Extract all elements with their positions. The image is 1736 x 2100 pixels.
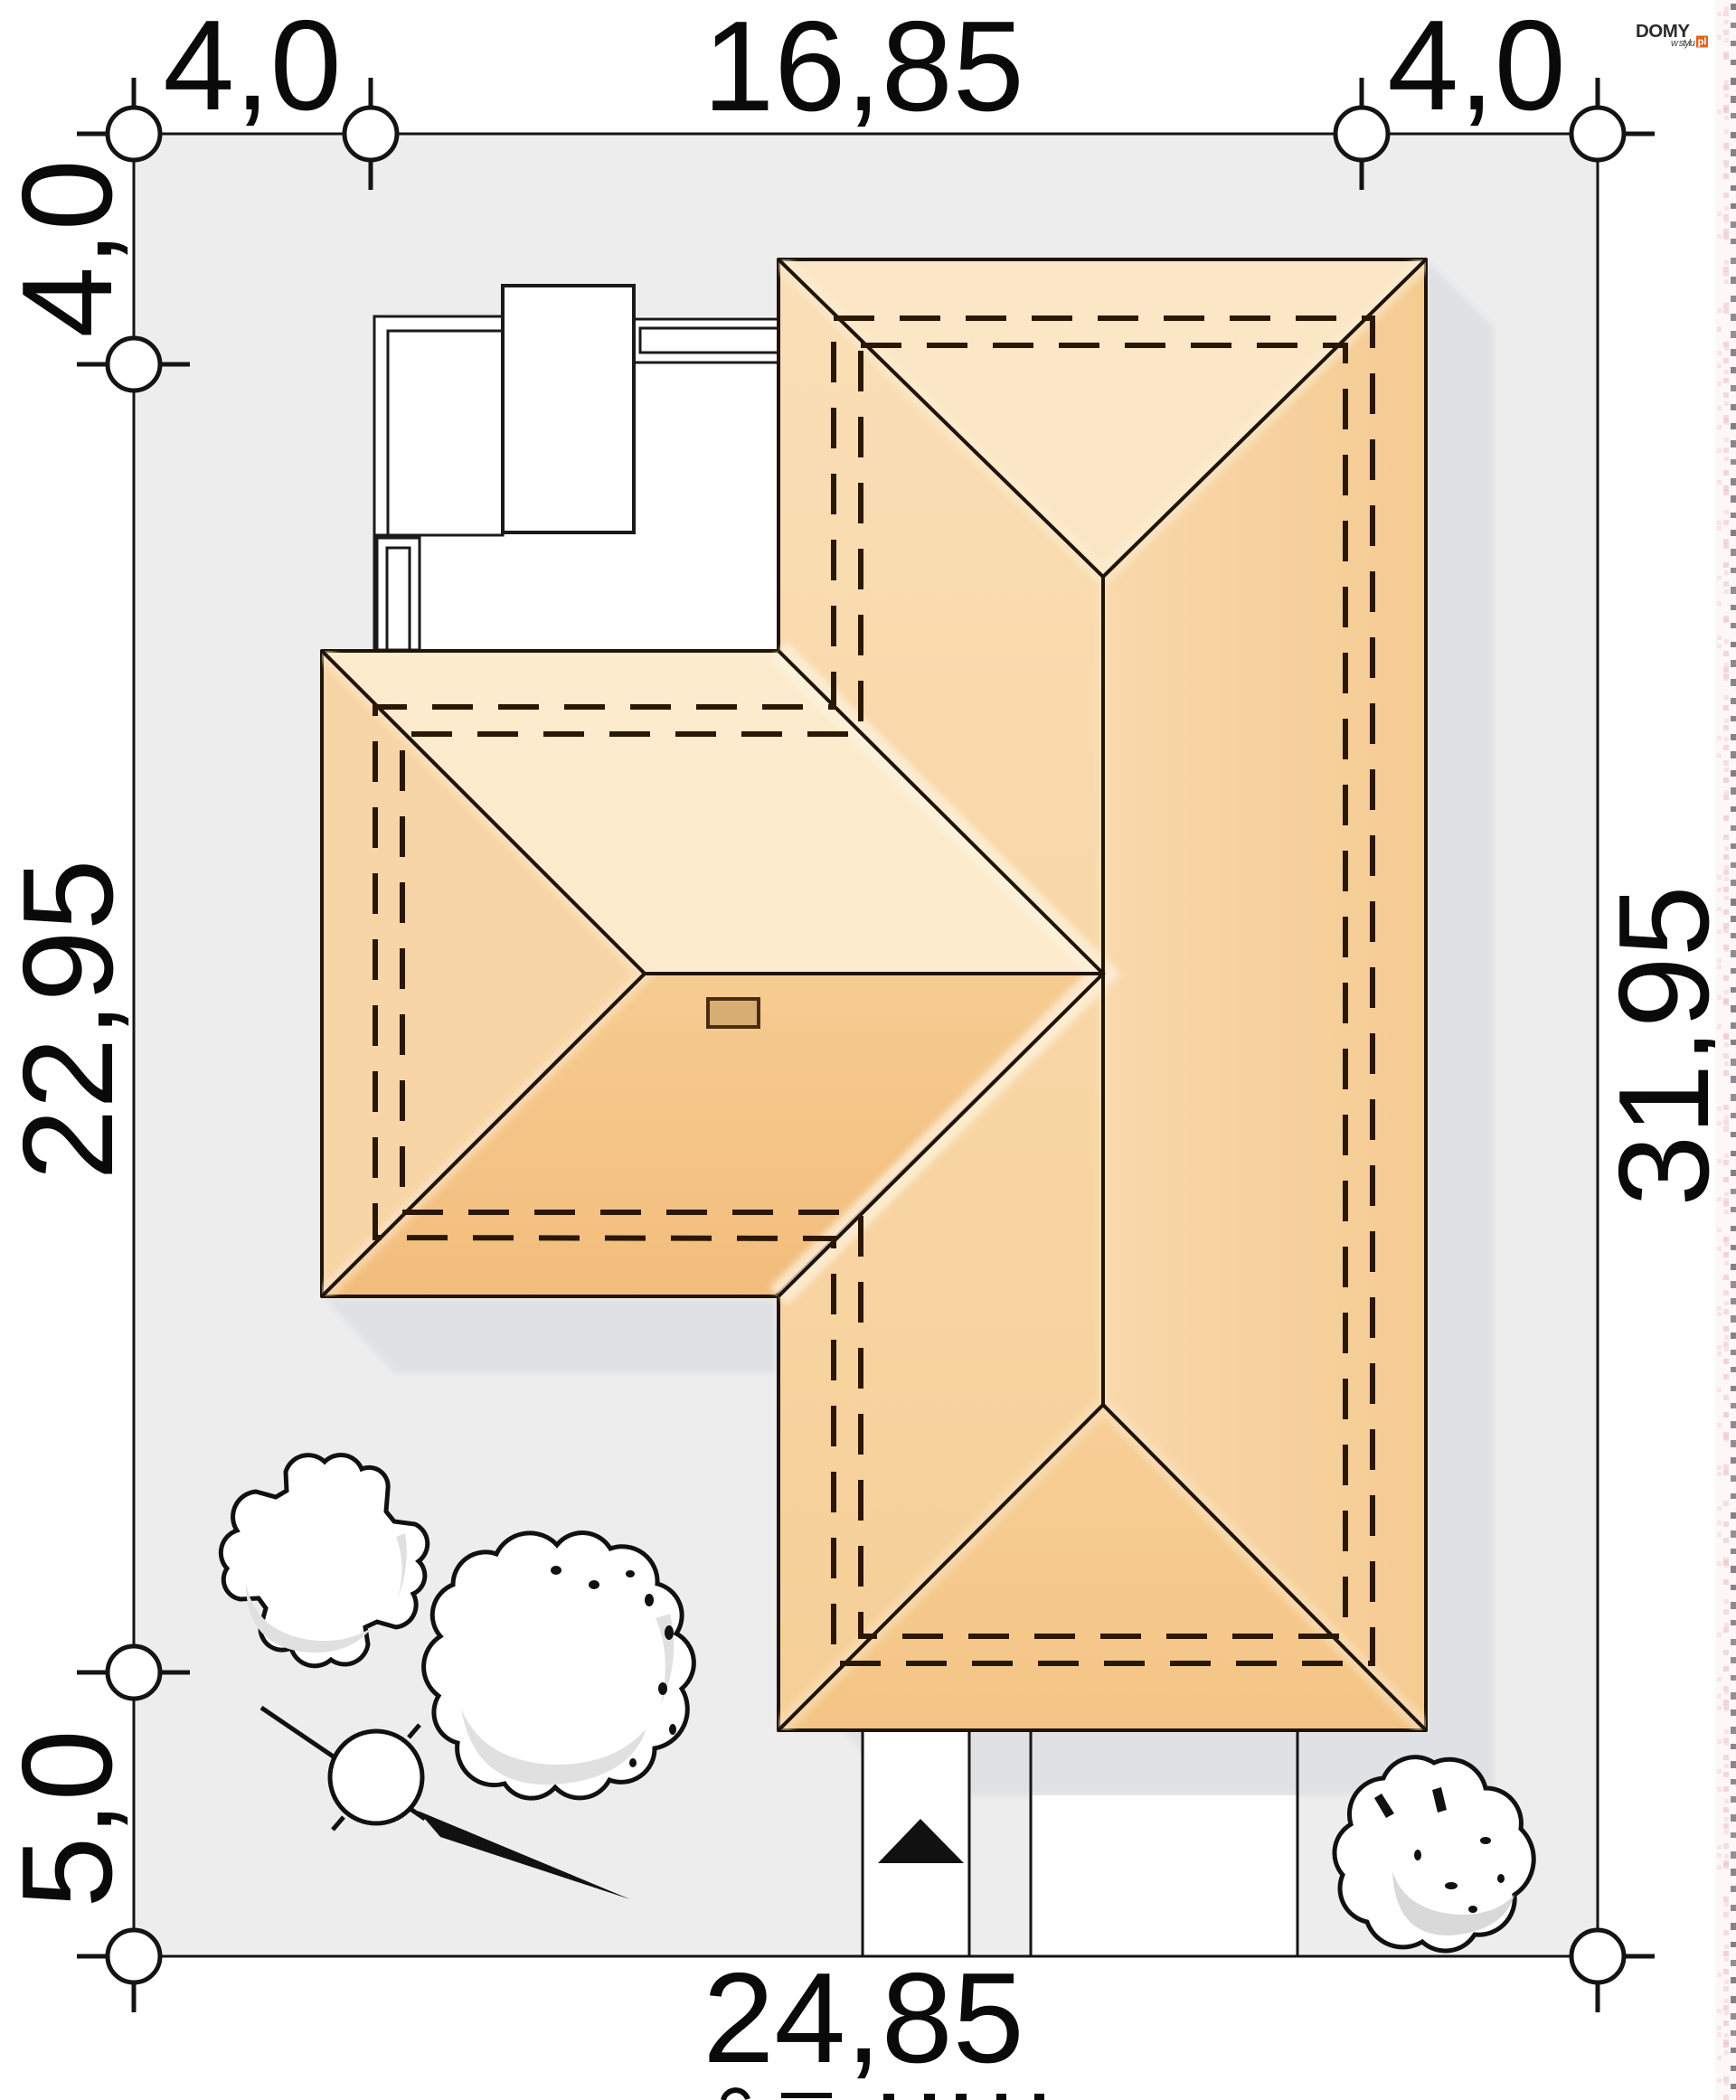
svg-text:22,95: 22,95 <box>0 859 140 1180</box>
svg-text:4,0: 4,0 <box>163 0 341 137</box>
svg-text:4,0: 4,0 <box>0 159 139 337</box>
svg-text:pl: pl <box>1698 37 1707 48</box>
svg-text:w stylu: w stylu <box>1671 38 1695 49</box>
svg-text:16,85: 16,85 <box>703 0 1024 138</box>
svg-text:5,0: 5,0 <box>0 1729 139 1907</box>
svg-text:4,0: 4,0 <box>1387 0 1565 137</box>
svg-text:24,85: 24,85 <box>703 1946 1024 2090</box>
svg-text:31,95: 31,95 <box>1592 885 1736 1206</box>
